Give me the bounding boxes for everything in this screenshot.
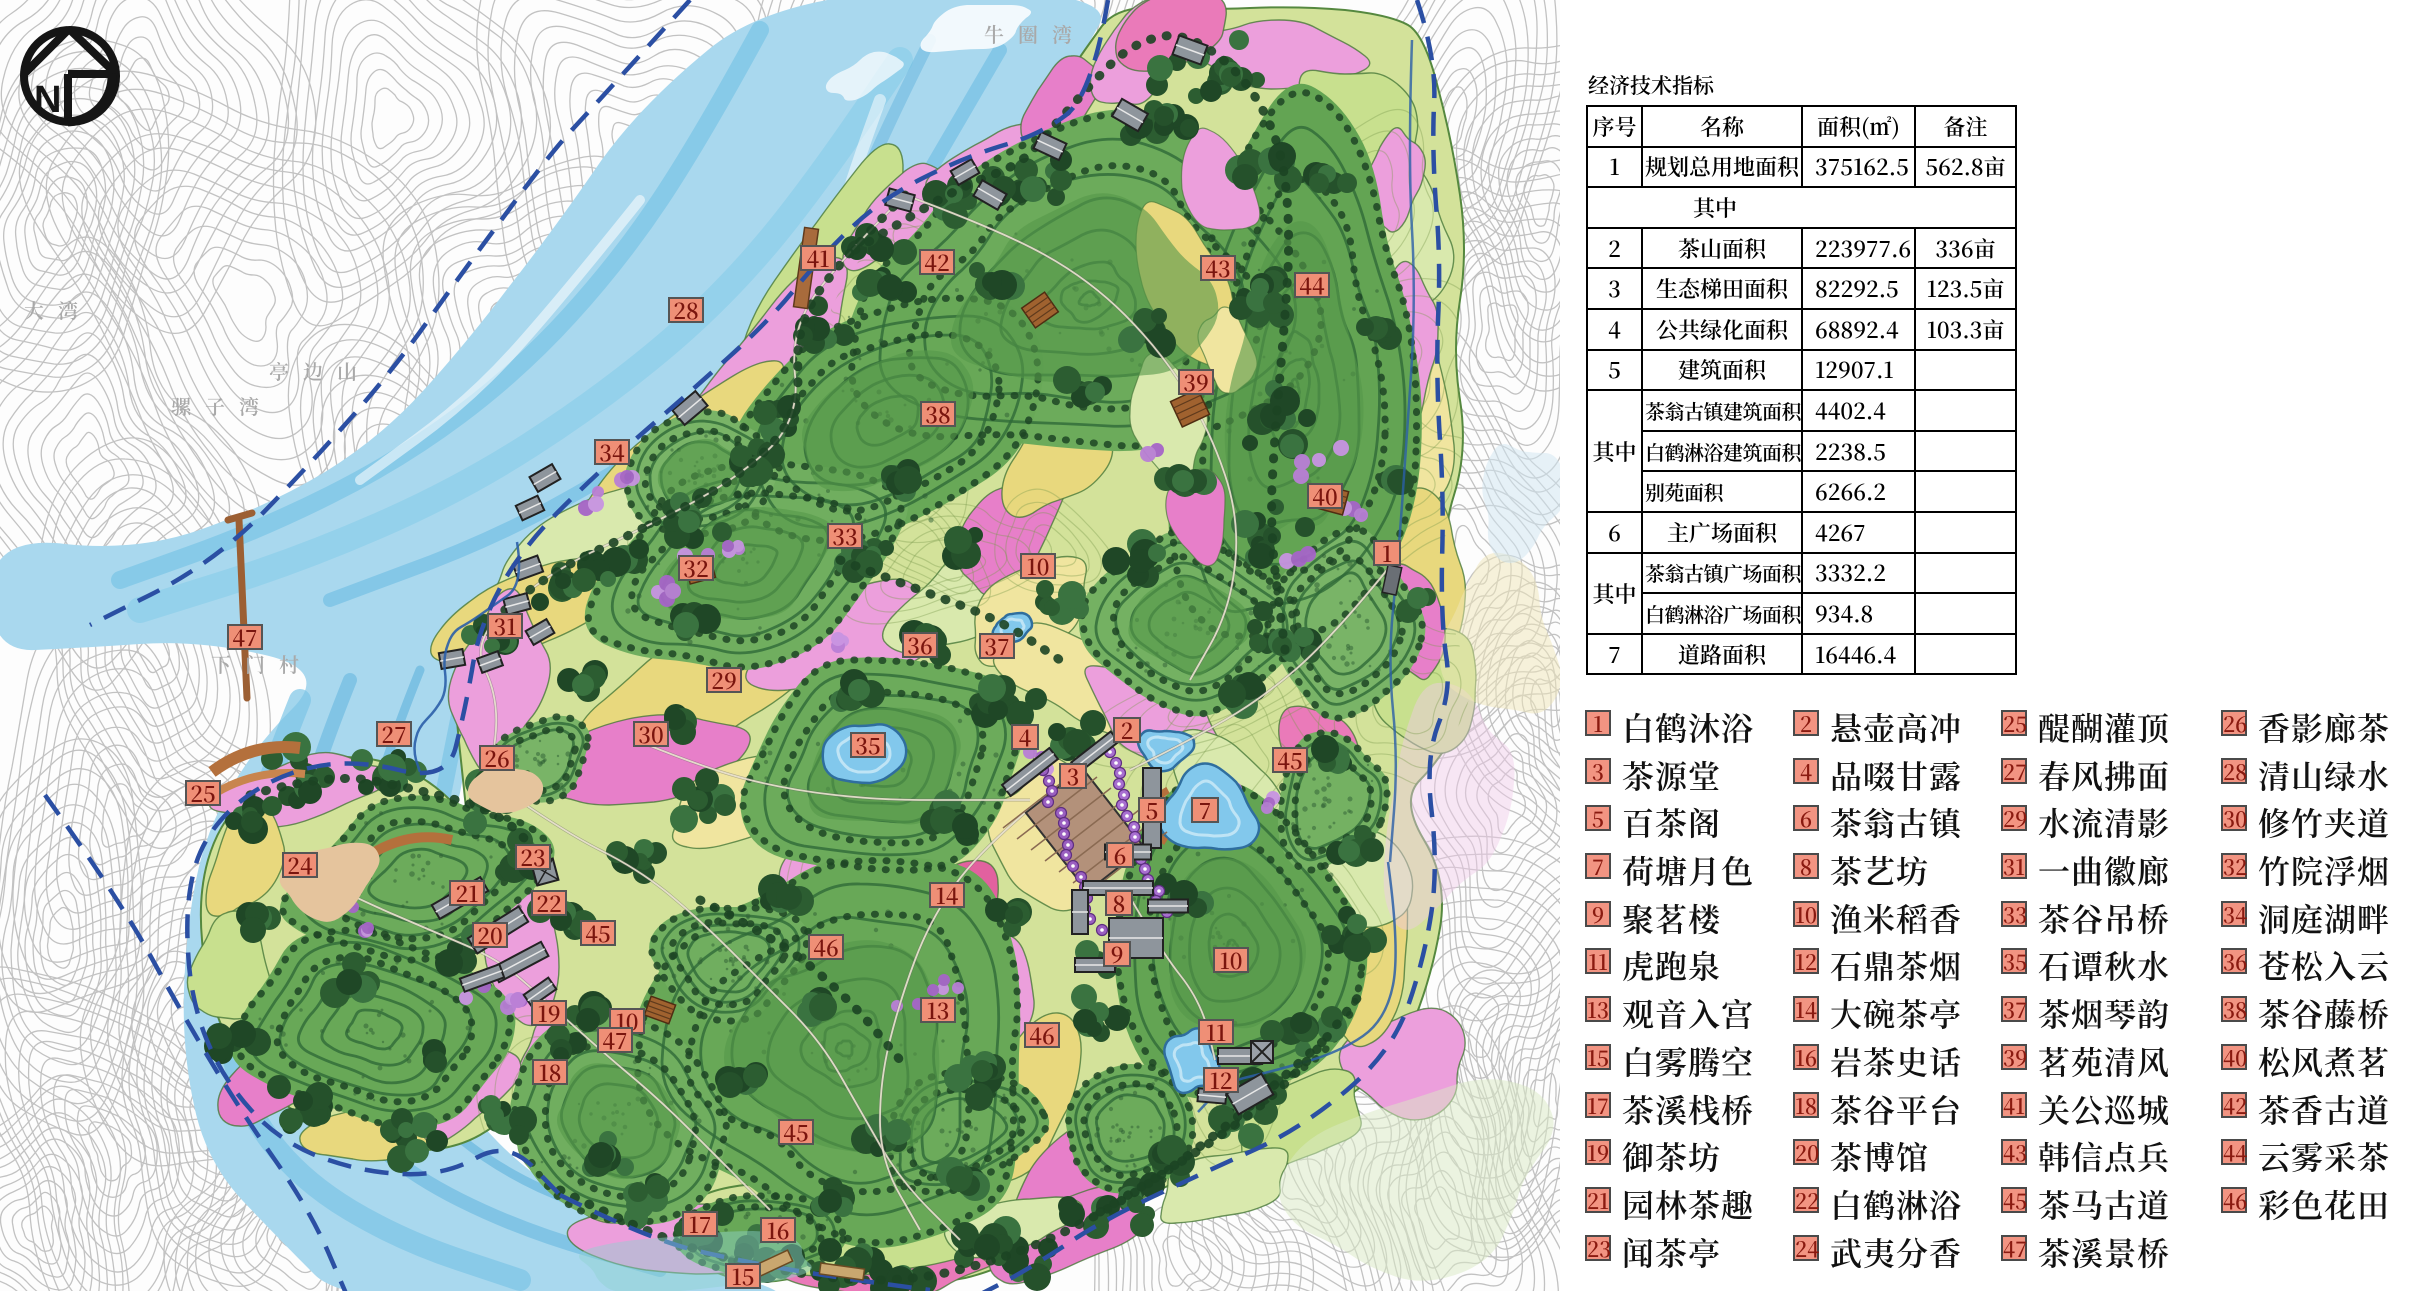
svg-text:22: 22 — [536, 888, 561, 919]
svg-text:45: 45 — [783, 1117, 808, 1148]
svg-text:40: 40 — [1312, 481, 1337, 512]
svg-text:28: 28 — [673, 295, 698, 326]
svg-text:46: 46 — [813, 932, 838, 963]
svg-text:7: 7 — [1199, 795, 1212, 826]
svg-text:36: 36 — [907, 630, 932, 661]
svg-text:11: 11 — [1206, 1017, 1227, 1048]
svg-text:18: 18 — [538, 1057, 561, 1088]
svg-text:骡子湾: 骡子湾 — [171, 391, 273, 420]
svg-text:下门村: 下门村 — [211, 649, 313, 678]
svg-text:47: 47 — [602, 1025, 627, 1056]
svg-text:6: 6 — [1114, 840, 1127, 871]
svg-text:3: 3 — [1067, 761, 1080, 792]
svg-text:24: 24 — [287, 850, 313, 881]
svg-text:31: 31 — [493, 611, 516, 642]
svg-text:2: 2 — [1121, 715, 1134, 746]
svg-text:45: 45 — [585, 918, 610, 949]
svg-text:45: 45 — [1277, 745, 1302, 776]
svg-text:43: 43 — [1205, 253, 1230, 284]
svg-text:14: 14 — [936, 880, 959, 911]
svg-text:15: 15 — [731, 1261, 754, 1292]
svg-text:10: 10 — [1026, 551, 1049, 582]
svg-text:39: 39 — [1183, 367, 1209, 398]
svg-text:10: 10 — [1219, 945, 1242, 976]
svg-text:30: 30 — [638, 719, 663, 750]
svg-text:亭边山: 亭边山 — [269, 356, 371, 385]
svg-text:8: 8 — [1113, 888, 1126, 919]
svg-text:4: 4 — [1019, 722, 1032, 753]
svg-text:42: 42 — [924, 247, 949, 278]
svg-text:17: 17 — [689, 1209, 712, 1240]
svg-text:23: 23 — [520, 842, 545, 873]
svg-text:16: 16 — [766, 1215, 789, 1246]
svg-text:33: 33 — [832, 521, 857, 552]
svg-text:9: 9 — [1111, 939, 1124, 970]
svg-text:32: 32 — [683, 553, 708, 584]
svg-text:38: 38 — [925, 399, 950, 430]
svg-text:大湾: 大湾 — [24, 295, 92, 324]
svg-text:N: N — [34, 79, 61, 121]
svg-text:5: 5 — [1146, 795, 1159, 826]
svg-text:41: 41 — [807, 243, 830, 274]
svg-text:20: 20 — [477, 920, 502, 951]
svg-text:29: 29 — [711, 665, 737, 696]
svg-text:13: 13 — [926, 995, 949, 1026]
svg-text:44: 44 — [1299, 270, 1325, 301]
svg-text:19: 19 — [537, 998, 560, 1029]
svg-text:34: 34 — [599, 437, 625, 468]
svg-text:37: 37 — [984, 631, 1009, 662]
svg-text:21: 21 — [455, 878, 478, 909]
svg-text:26: 26 — [484, 743, 509, 774]
svg-text:46: 46 — [1029, 1020, 1054, 1051]
svg-text:1: 1 — [1382, 538, 1392, 569]
svg-text:25: 25 — [190, 778, 215, 809]
svg-text:12: 12 — [1209, 1065, 1232, 1096]
svg-text:35: 35 — [855, 730, 880, 761]
svg-text:27: 27 — [381, 719, 406, 750]
svg-text:牛圈湾: 牛圈湾 — [984, 19, 1086, 48]
